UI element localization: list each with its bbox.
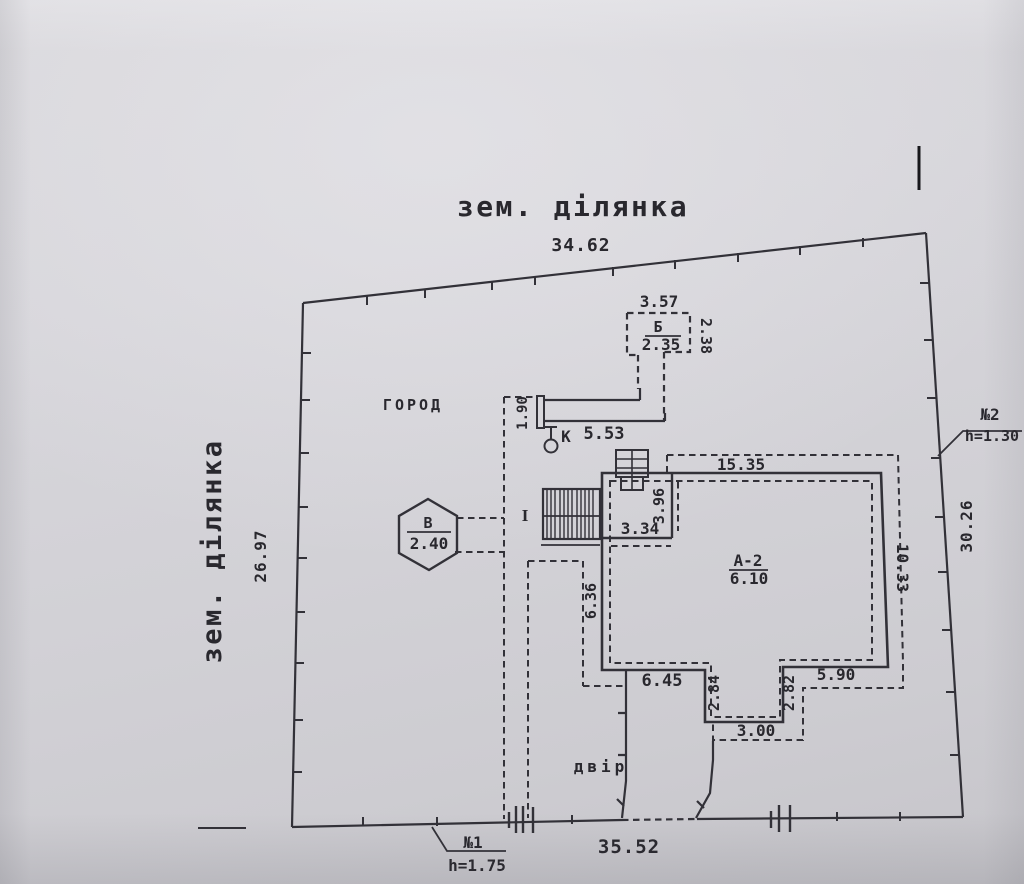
- outbuilding-b-dim-width: 3.57: [640, 292, 679, 311]
- plot-dim-right: 30.26: [957, 499, 976, 552]
- yard-fence-left: [617, 670, 626, 818]
- gate-1-strokes: [509, 806, 533, 833]
- porch-steps: [541, 489, 600, 545]
- outbuilding-b-dim-depth: 2.38: [697, 318, 715, 354]
- boundary-bottom-solid-right: [697, 817, 963, 819]
- porch-landing-line: [541, 516, 600, 545]
- gate1-height: h=1.75: [448, 856, 506, 875]
- outbuilding-b-corridor: [638, 352, 664, 421]
- photographed-site-plan: зем. ділянка 34.62 зем. ділянка 26.97 30…: [0, 0, 1024, 884]
- outbuilding-b-label: Б: [653, 318, 662, 336]
- house-dim-right: 10.33: [893, 544, 912, 592]
- site-plan-drawing: зем. ділянка 34.62 зем. ділянка 26.97 30…: [0, 0, 1024, 884]
- fence-rail-upper: [544, 388, 640, 400]
- house-label: А-2: [734, 551, 763, 570]
- plot-dim-bottom: 35.52: [598, 836, 660, 858]
- porch-label: I: [522, 506, 529, 525]
- hex-label: В: [423, 514, 432, 532]
- well-label: К: [561, 427, 571, 446]
- well-icon-stem: [545, 427, 557, 439]
- porch-hatching: [547, 489, 593, 539]
- cellar-entry: [616, 450, 648, 490]
- garden-walkway: [455, 397, 537, 819]
- yard-fence-right: [696, 741, 713, 818]
- hex-value: 2.40: [410, 534, 449, 553]
- plot-dim-left: 26.97: [251, 529, 270, 582]
- boundary-top-edge: [303, 233, 926, 303]
- plot-title-top: зем. ділянка: [457, 190, 689, 223]
- boundary-bottom-gate-opening: [622, 819, 697, 820]
- yard-walkway: [528, 561, 624, 818]
- outbuilding-b-value: 2.35: [642, 335, 681, 354]
- well-dim-post: 1.90: [515, 396, 531, 430]
- garden-label: ГОРОД: [383, 396, 443, 414]
- well-dim-length: 5.53: [584, 424, 625, 444]
- house-dim-bottom-right: 5.90: [817, 665, 856, 684]
- gate-post: [537, 396, 544, 428]
- gate2-label: №2: [980, 405, 999, 424]
- yard-label: двір: [574, 757, 629, 776]
- gate1-label: №1: [463, 833, 482, 852]
- fence-rail-lower: [544, 413, 665, 421]
- well-icon: [545, 440, 558, 453]
- house-dim-top: 15.35: [717, 455, 765, 474]
- house-value: 6.10: [730, 569, 769, 588]
- plot-title-left: зем. ділянка: [197, 438, 228, 663]
- house-dim-notch-right: 2.82: [780, 675, 798, 711]
- boundary-left-edge: [292, 303, 303, 827]
- house-dim-left: 6.36: [582, 583, 600, 619]
- house-dim-notch-left: 2.84: [705, 675, 723, 711]
- yard-fences: [617, 670, 713, 818]
- house-dim-bottom-left: 6.45: [642, 671, 683, 691]
- gate2-height: h=1.30: [965, 427, 1019, 445]
- house-dim-notch-bottom: 3.00: [737, 721, 776, 740]
- house-dim-room-h: 3.96: [650, 488, 668, 524]
- plot-dim-top: 34.62: [551, 235, 610, 256]
